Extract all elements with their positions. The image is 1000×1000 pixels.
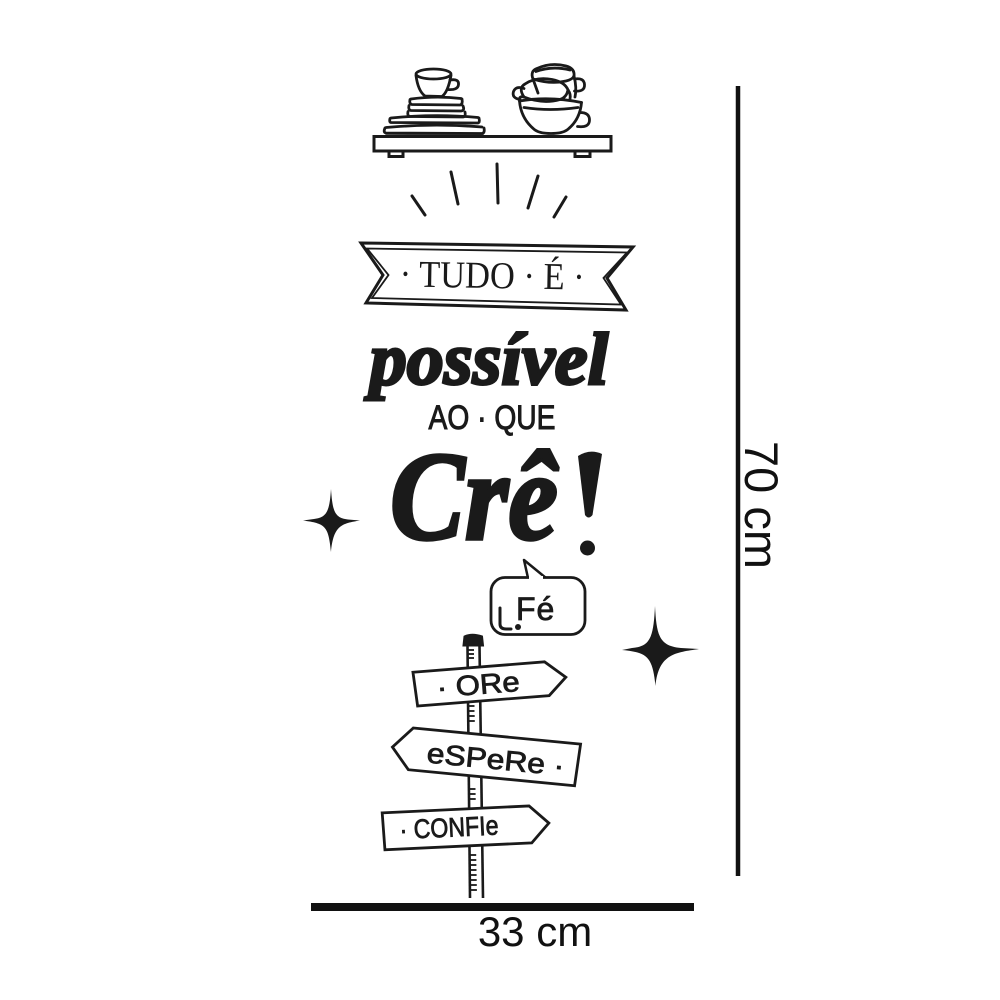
svg-text:33 cm: 33 cm (478, 908, 592, 955)
svg-text:Crê: Crê (390, 428, 559, 567)
svg-text:70 cm: 70 cm (735, 441, 788, 569)
svg-text:Fé: Fé (516, 591, 555, 627)
svg-text:· ORe: · ORe (436, 666, 521, 703)
svg-text:· TUDO · É ·: · TUDO · É · (399, 253, 585, 298)
svg-text:possível: possível (364, 319, 609, 401)
svg-text:· CONFIe: · CONFIe (399, 810, 499, 845)
